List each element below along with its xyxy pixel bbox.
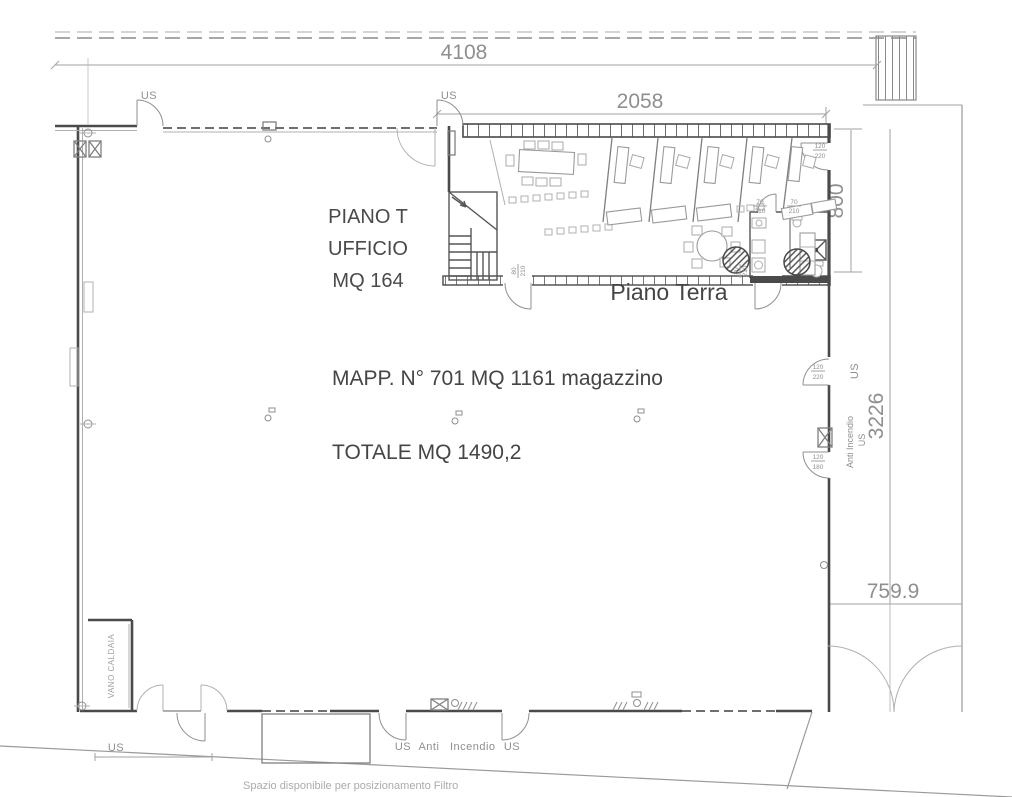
door-swing-us-south-3 xyxy=(502,713,529,740)
column-marker xyxy=(265,408,275,421)
chair xyxy=(578,154,586,165)
stairs-diagonal xyxy=(449,192,497,230)
column-marker xyxy=(265,136,271,142)
low-cabinet xyxy=(696,204,731,221)
exit-label-south-1: US xyxy=(108,742,124,754)
workstation-1 xyxy=(614,147,644,184)
conference-table xyxy=(518,150,574,175)
xbox-cross xyxy=(74,141,86,157)
chair xyxy=(684,242,693,252)
external-grate xyxy=(876,36,916,100)
pilaster-xbox-4 xyxy=(431,699,448,710)
office-chair xyxy=(676,155,690,169)
dim-4108-label: 4108 xyxy=(441,41,488,64)
xbox-cross xyxy=(89,141,101,157)
workstation-4 xyxy=(749,147,779,184)
column-circle xyxy=(452,700,459,707)
gate-leaf-left-swing xyxy=(828,646,894,712)
column-box xyxy=(632,692,641,697)
low-cabinet xyxy=(651,206,686,223)
column-circle xyxy=(265,136,271,142)
column-box xyxy=(269,408,275,412)
door-height: 210 xyxy=(755,208,766,215)
dim-759-label: 759.9 xyxy=(867,580,920,603)
stack-item xyxy=(545,194,552,200)
column-circle xyxy=(265,415,271,421)
chair xyxy=(550,178,561,186)
door-swing-us-east xyxy=(803,359,829,385)
door-size-70-210-a: 70 210 xyxy=(753,199,767,215)
chair xyxy=(506,155,514,166)
chair xyxy=(536,178,547,186)
fire-exit-us-label-east: US xyxy=(857,434,867,447)
stacked-chairs-row-1 xyxy=(509,191,588,203)
column-marker xyxy=(632,692,641,707)
office-chair xyxy=(630,155,644,169)
pilaster-xbox-1 xyxy=(74,141,86,157)
column-marker xyxy=(452,700,459,707)
exit-label-south-2: US xyxy=(395,741,411,753)
fire-exit-label-east: Anti Incendio xyxy=(845,416,855,468)
hatch-marks xyxy=(458,702,477,710)
hatch-marks xyxy=(613,702,627,710)
workstation-3 xyxy=(704,147,734,184)
door-swing-us-north-1 xyxy=(137,100,163,126)
floor-title: Piano Terra xyxy=(610,279,727,305)
door-height: 220 xyxy=(813,374,824,381)
door-width: 70 xyxy=(790,199,798,206)
column-marker xyxy=(452,411,462,424)
wall-fixture xyxy=(84,282,93,312)
stack-item xyxy=(569,227,576,233)
zone-label-line2: UFFICIO xyxy=(328,238,408,260)
column-marker xyxy=(634,409,644,422)
stacked-chairs-row-2 xyxy=(545,224,612,235)
pilaster-xbox-2 xyxy=(89,141,101,157)
door-height: 180 xyxy=(813,464,824,471)
dim-2058-label: 2058 xyxy=(617,90,664,113)
door-width: 70 xyxy=(756,199,764,206)
workstation-2 xyxy=(660,147,690,184)
door-size-120-220-a: 120 220 xyxy=(813,143,827,160)
low-cabinet xyxy=(606,208,641,225)
chair xyxy=(524,141,535,149)
chair xyxy=(692,259,702,268)
zone-label-line3: MQ 164 xyxy=(332,270,403,292)
floor-plan-drawing: Spazio disponibile per posizionamento Fi… xyxy=(0,0,1012,797)
office-furniture xyxy=(490,138,837,275)
door-height: 210 xyxy=(789,208,800,215)
door-size-labels: 120 220 120 220 120 180 70 210 70 210 80… xyxy=(511,143,827,471)
exit-label-south-3: US xyxy=(504,741,520,753)
south-boundary-slope-line xyxy=(0,746,1012,797)
exit-label-east: US xyxy=(849,363,861,379)
door-swing-us-south-2 xyxy=(379,713,406,740)
workstation-5 xyxy=(788,147,816,182)
gate-leaf-right-swing xyxy=(894,646,962,712)
door-width: 80 xyxy=(511,267,518,275)
desk xyxy=(704,147,719,184)
column-box xyxy=(456,411,462,415)
stack-item xyxy=(737,206,744,212)
exit-label-north-1: US xyxy=(141,90,157,102)
column-marker xyxy=(821,562,828,569)
desk xyxy=(614,147,629,184)
stack-item xyxy=(581,226,588,232)
chair xyxy=(722,227,732,236)
chair xyxy=(552,142,563,150)
column-box xyxy=(638,409,644,413)
stairs-treads xyxy=(449,236,471,276)
mapp-label: MAPP. N° 701 MQ 1161 magazzino xyxy=(332,367,663,390)
boiler-unit xyxy=(752,240,765,253)
washer xyxy=(752,258,765,272)
stack-item xyxy=(521,196,528,202)
chair xyxy=(692,226,702,235)
column-circle xyxy=(452,418,458,424)
filter-note-label: Spazio disponibile per posizionamento Fi… xyxy=(243,780,458,792)
column-circle xyxy=(634,700,641,707)
office-stairs xyxy=(449,192,497,280)
stack-item xyxy=(557,193,564,199)
door-swing-us-south-1 xyxy=(177,713,205,741)
total-label: TOTALE MQ 1490,2 xyxy=(332,441,521,464)
site-boundary: Spazio disponibile per posizionamento Fi… xyxy=(0,32,1012,797)
door-swing-interior xyxy=(397,128,435,166)
door-size-120-220-b: 120 220 xyxy=(811,364,825,381)
door-size-120-180: 120 180 xyxy=(811,454,825,471)
door-width: 80 xyxy=(733,267,740,275)
exit-label-north-2: US xyxy=(441,90,457,102)
xbox-cross xyxy=(431,699,448,710)
door-height: 220 xyxy=(815,153,826,160)
door-swing-us-north-2 xyxy=(437,100,463,126)
door-width: 120 xyxy=(813,454,824,461)
desk xyxy=(749,147,764,184)
stairs-direction-arrow xyxy=(452,197,466,207)
door-swing-interior-south-a xyxy=(137,685,163,711)
door-width: 120 xyxy=(813,364,824,371)
door-swing-interior-south-b xyxy=(201,685,227,711)
fire-exit-label-south: Anti Incendio xyxy=(418,741,495,753)
chair xyxy=(538,141,549,149)
stack-item xyxy=(593,225,600,231)
stack-item xyxy=(581,191,588,197)
stack-item xyxy=(509,197,516,203)
stack-item xyxy=(569,192,576,198)
stack-item xyxy=(545,229,552,235)
boiler-room-label: VANO CALDAIA xyxy=(107,634,116,699)
office-chair xyxy=(720,155,734,169)
dim-3226-label: 3226 xyxy=(865,393,888,440)
column-circle xyxy=(634,416,640,422)
door-height: 210 xyxy=(742,265,749,276)
door-width: 120 xyxy=(815,143,826,150)
office-front-window-wall xyxy=(463,124,830,137)
hatch-marks xyxy=(644,702,658,710)
external-platform xyxy=(262,714,370,763)
desk xyxy=(660,147,675,184)
plan-labels: PIANO T UFFICIO MQ 164 Piano Terra MAPP.… xyxy=(107,90,867,754)
office-chair xyxy=(765,155,779,169)
hatched-column-2 xyxy=(784,249,810,275)
column-circle xyxy=(821,562,828,569)
chair xyxy=(522,177,533,185)
door-height: 210 xyxy=(520,265,527,276)
stack-item xyxy=(747,205,754,211)
zone-label-line1: PIANO T xyxy=(328,206,408,228)
stack-item xyxy=(557,228,564,234)
southeast-diagonal-line xyxy=(787,712,812,789)
stack-item xyxy=(533,195,540,201)
floor-plan-canvas: Spazio disponibile per posizionamento Fi… xyxy=(0,0,1012,797)
